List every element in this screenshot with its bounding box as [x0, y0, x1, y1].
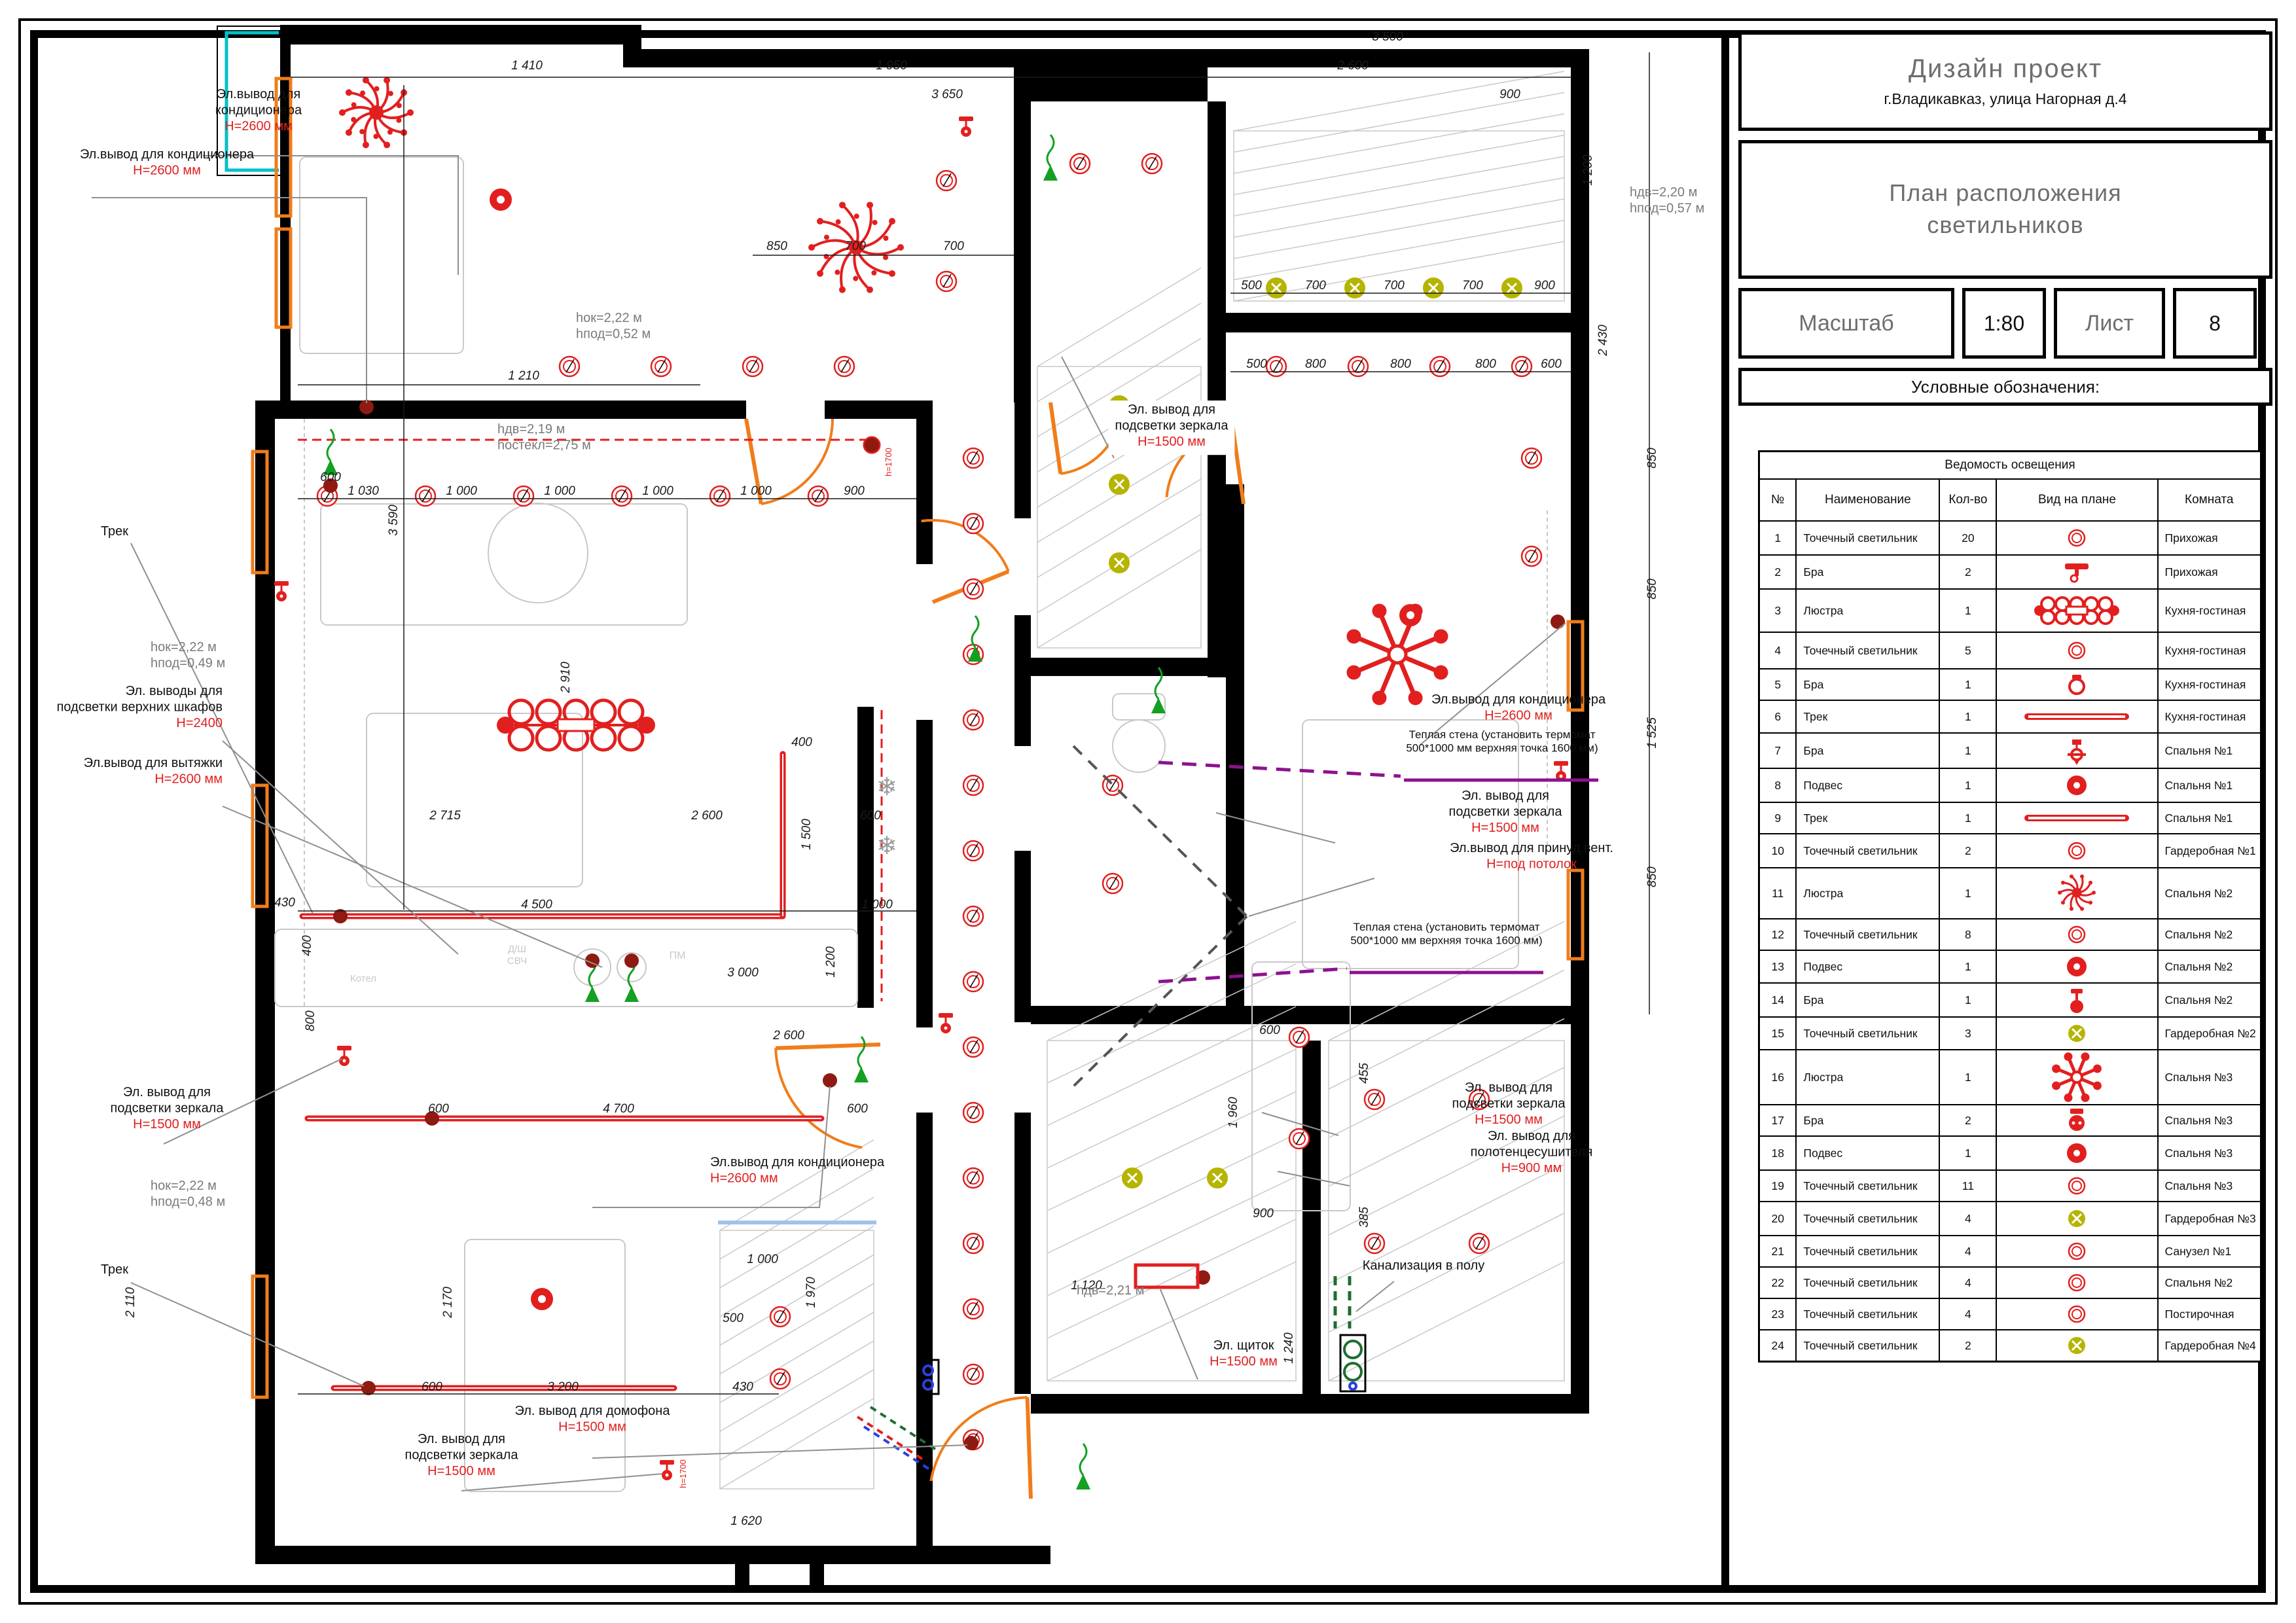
dimension-label: 400: [300, 935, 314, 956]
dimension-label: 700: [1305, 279, 1326, 293]
legend-row-number: 22: [1759, 1267, 1797, 1298]
legend-room: Спальня №3: [2158, 1136, 2261, 1170]
wall: [1014, 615, 1031, 746]
spot-light-icon: [612, 486, 632, 506]
svg-text:Эл. щиток: Эл. щиток: [1213, 1338, 1274, 1353]
legend-fixture-name: Точечный светильник: [1796, 1202, 1939, 1236]
scale-label: Масштаб: [1738, 288, 1954, 359]
spot-light-icon: [963, 1168, 983, 1188]
legend-qty: 4: [1939, 1236, 1996, 1267]
spot-light-icon: [1289, 1027, 1309, 1047]
legend-plan-symbol-spot-closet-icon: [1996, 1330, 2157, 1362]
dimension-label: 700: [845, 240, 866, 253]
legend-plan-symbol-bra-ring-icon: [1996, 669, 2157, 700]
legend-row-number: 8: [1759, 768, 1797, 802]
legend-row: 6 Трек 1 Кухня-гостиная: [1759, 700, 2261, 733]
closet-spot-light-icon: [1109, 553, 1129, 573]
legend-plan-symbol-bra-t-icon: [1996, 555, 2157, 589]
svg-text:500*1000 мм верхняя точка 1600: 500*1000 мм верхняя точка 1600 мм): [1350, 935, 1542, 947]
spot-light-icon: [710, 486, 730, 506]
svg-text:500*1000 мм верхняя точка 1600: 500*1000 мм верхняя точка 1600 мм): [1406, 742, 1598, 755]
annotation-height-value: H=2600 мм: [1484, 708, 1552, 722]
legend-room: Спальня №3: [2158, 1050, 2261, 1105]
legend-room: Спальня №1: [2158, 733, 2261, 768]
wall: [1014, 401, 1031, 518]
legend-row-number: 15: [1759, 1017, 1797, 1050]
legend-room: Гардеробная №2: [2158, 1017, 2261, 1050]
small-label: h=1700: [884, 448, 893, 476]
wall: [1031, 658, 1226, 676]
dimension-label: 800: [1305, 357, 1326, 371]
dimension-label: 2 170: [441, 1287, 455, 1319]
svg-text:Эл.вывод для принуд.вент.: Эл.вывод для принуд.вент.: [1450, 841, 1613, 855]
dimension-label: 2 430: [1596, 325, 1610, 357]
drawing-title-line2: светильников: [1889, 209, 2121, 241]
spot-light-icon: [963, 514, 983, 533]
svg-text:hдв=2,21 м: hдв=2,21 м: [1077, 1283, 1144, 1298]
spot-light-icon: [937, 272, 956, 291]
legend-row: 21 Точечный светильник 4 Санузел №1: [1759, 1236, 2261, 1267]
legend-fixture-name: Люстра: [1796, 589, 1939, 632]
legend-qty: 4: [1939, 1298, 1996, 1330]
small-label: Д/Ш: [508, 944, 526, 955]
legend-fixture-name: Люстра: [1796, 868, 1939, 919]
legend-qty: 4: [1939, 1267, 1996, 1298]
wall-sconce-icon: [959, 116, 973, 137]
spot-light-icon: [743, 357, 762, 376]
legend-fixture-name: Бра: [1796, 555, 1939, 589]
leader-line: [203, 156, 458, 275]
svg-text:Эл. выводы для: Эл. выводы для: [126, 684, 223, 698]
annotation-height-value: H=2600 мм: [154, 772, 223, 786]
svg-text:подсветки верхних шкафов: подсветки верхних шкафов: [57, 700, 223, 714]
annotation: Канализация в полу: [1363, 1258, 1484, 1273]
legend-qty: 1: [1939, 589, 1996, 632]
legend-fixture-name: Точечный светильник: [1796, 1330, 1939, 1362]
legend-row: 17 Бра 2 Спальня №3: [1759, 1105, 2261, 1136]
annotation: Эл.вывод длякондиционераH=2600 мм: [215, 87, 302, 134]
legend-row-number: 16: [1759, 1050, 1797, 1105]
leader-line: [1160, 1288, 1198, 1380]
spot-light-icon: [1365, 1234, 1384, 1253]
wall: [1031, 1394, 1589, 1414]
legend-qty: 1: [1939, 768, 1996, 802]
svg-text:hпод=0,57 м: hпод=0,57 м: [1630, 201, 1704, 215]
legend-qty: 11: [1939, 1170, 1996, 1202]
switch-icon: [1043, 135, 1058, 181]
legend-caption: Условные обозначения:: [1911, 377, 2100, 397]
dimension-label: 3 000: [727, 966, 759, 980]
legend-room: Постирочная: [2158, 1298, 2261, 1330]
svg-text:подсветки зеркала: подсветки зеркала: [1115, 418, 1229, 433]
project-address: г.Владикавказ, улица Нагорная д.4: [1884, 90, 2126, 108]
freezer-icon: ❄: [876, 774, 897, 801]
legend-room: Спальня №2: [2158, 983, 2261, 1017]
wall-sconce-icon: [274, 581, 289, 601]
sputnik-chandelier-icon: [1346, 603, 1448, 705]
wall: [280, 25, 634, 45]
legend-row-number: 19: [1759, 1170, 1797, 1202]
leader-line: [131, 1283, 364, 1386]
dimension-label: 2 600: [1336, 59, 1369, 73]
pendant-light-icon: [490, 188, 512, 211]
svg-text:Эл. вывод для: Эл. вывод для: [1488, 1129, 1575, 1143]
leader-line: [1249, 878, 1374, 916]
dimension-label: 400: [791, 736, 812, 749]
legend-plan-symbol-spot-icon: [1996, 1298, 2157, 1330]
legend-qty: 5: [1939, 632, 1996, 669]
wall: [1302, 1041, 1321, 1394]
legend-row: 20 Точечный светильник 4 Гардеробная №3: [1759, 1202, 2261, 1236]
spot-light-icon: [1348, 357, 1368, 376]
dimension-label: 2 910: [559, 662, 573, 694]
legend-room: Спальня №2: [2158, 868, 2261, 919]
legend-row: 22 Точечный светильник 4 Спальня №2: [1759, 1267, 2261, 1298]
project-box: Дизайн проект г.Владикавказ, улица Нагор…: [1738, 31, 2272, 131]
furniture: [321, 504, 687, 625]
spot-light-icon: [1522, 448, 1541, 468]
spot-light-icon: [963, 1037, 983, 1057]
closet-spot-light-icon: [1502, 278, 1522, 298]
spot-light-icon: [1430, 357, 1450, 376]
svg-text:Эл.вывод для кондиционера: Эл.вывод для кондиционера: [1431, 692, 1606, 707]
legend-fixture-name: Точечный светильник: [1796, 521, 1939, 555]
spot-light-icon: [963, 1103, 983, 1122]
legend-fixture-name: Точечный светильник: [1796, 1170, 1939, 1202]
spot-light-icon: [416, 486, 435, 506]
dimension-label: 500: [723, 1311, 744, 1325]
spot-light-icon: [963, 906, 983, 926]
spot-light-icon: [1266, 357, 1286, 376]
dimension-label: 1 240: [1282, 1332, 1296, 1364]
legend-qty: 1: [1939, 983, 1996, 1017]
spot-light-icon: [963, 579, 983, 599]
dimension-label: 1 000: [861, 898, 893, 912]
closet-spot-light-icon: [1109, 474, 1129, 494]
spot-light-icon: [514, 486, 533, 506]
drawing-sheet: ❄❄1 4101 2103 5903 6501 9502 6009003 500…: [0, 0, 2296, 1623]
leader-line: [92, 198, 367, 403]
spot-light-icon: [651, 357, 671, 376]
dimension-label: 1 030: [348, 484, 379, 498]
annotation-height-value: H=под потолок: [1486, 857, 1577, 871]
legend-plan-symbol-spot-icon: [1996, 521, 2157, 555]
legend-row-number: 9: [1759, 802, 1797, 834]
legend-qty: 8: [1939, 919, 1996, 950]
legend-row: 1 Точечный светильник 20 Прихожая: [1759, 521, 2261, 555]
svg-text:hдв=2,20 м: hдв=2,20 м: [1630, 185, 1697, 200]
title-block: Дизайн проект г.Владикавказ, улица Нагор…: [1738, 31, 2272, 415]
wall: [825, 401, 920, 419]
legend-room: Прихожая: [2158, 555, 2261, 589]
svg-text:Канализация в полу: Канализация в полу: [1363, 1258, 1484, 1273]
wall: [1014, 49, 1031, 402]
legend-room: Гардеробная №1: [2158, 834, 2261, 868]
svg-text:Трек: Трек: [101, 524, 128, 539]
annotation-height-value: H=2600 мм: [710, 1171, 778, 1185]
dimension-label: 850: [766, 240, 787, 253]
closet-spot-light-icon: [1345, 278, 1365, 298]
legend-row: 19 Точечный светильник 11 Спальня №3: [1759, 1170, 2261, 1202]
annotation: Эл.вывод для кондиционераH=2600 мм: [80, 147, 255, 177]
legend-row: 3 Люстра 1 Кухня-гостиная: [1759, 589, 2261, 632]
annotation-height-value: H=1500 мм: [1471, 821, 1539, 835]
closet-spot-light-icon: [1208, 1168, 1227, 1188]
dimension-label: 3 590: [387, 505, 401, 536]
furniture: [1252, 962, 1350, 1211]
spot-light-icon: [963, 1364, 983, 1384]
spot-light-icon: [1070, 154, 1090, 173]
svg-text:подсветки зеркала: подсветки зеркала: [111, 1101, 224, 1115]
annotation: Эл. вывод для домофонаH=1500 мм: [515, 1404, 671, 1434]
legend-plan-symbol-bra-drop-icon: [1996, 983, 2157, 1017]
dimension-label: 900: [844, 484, 865, 498]
electrical-outlet-dot: [361, 1381, 376, 1395]
wall-sconce-icon: [337, 1046, 351, 1066]
svg-text:hдв=2,19 м: hдв=2,19 м: [497, 422, 565, 437]
legend-plan-symbol-track-icon: [1996, 802, 2157, 834]
legend-fixture-name: Бра: [1796, 1105, 1939, 1136]
dimension-label: 600: [1541, 357, 1562, 371]
annotation: Эл. выводы дляподсветки верхних шкафовH=…: [57, 684, 223, 730]
dimension-label: 3 500: [1372, 30, 1403, 44]
legend-room: Спальня №1: [2158, 768, 2261, 802]
legend-col-header: №: [1759, 479, 1797, 521]
legend-plan-symbol-spot-closet-icon: [1996, 1017, 2157, 1050]
legend-room: Кухня-гостиная: [2158, 669, 2261, 700]
legend-plan-symbol-bra-finial-icon: [1996, 733, 2157, 768]
dimension-label: 700: [943, 240, 964, 253]
legend-plan-symbol-spot-icon: [1996, 1170, 2157, 1202]
wall: [916, 401, 933, 564]
annotation: Трек: [101, 1262, 128, 1277]
dimension-label: 850: [1645, 866, 1659, 887]
svg-text:подсветки зеркала: подсветки зеркала: [1452, 1096, 1566, 1111]
svg-text:Эл. вывод для: Эл. вывод для: [418, 1432, 505, 1446]
electrical-outlet-dot: [865, 438, 879, 452]
dimension-label: 455: [1357, 1063, 1371, 1084]
freezer-icon: ❄: [876, 832, 897, 860]
dimension-label: 3 200: [547, 1380, 579, 1394]
legend-fixture-name: Точечный светильник: [1796, 632, 1939, 669]
small-label: СВЧ: [507, 955, 527, 967]
legend-qty: 20: [1939, 521, 1996, 555]
leader-line: [1356, 1281, 1394, 1311]
svg-text:Эл.вывод для кондиционера: Эл.вывод для кондиционера: [710, 1155, 885, 1169]
legend-row: 24 Точечный светильник 2 Гардеробная №4: [1759, 1330, 2261, 1362]
annotation-height-value: H=2600 мм: [133, 163, 201, 177]
annotation: hдв=2,19 мhостекл=2,75 м: [497, 422, 591, 452]
furniture: [488, 503, 588, 603]
svg-text:hпод=0,48 м: hпод=0,48 м: [151, 1194, 225, 1209]
svg-text:Эл. вывод для домофона: Эл. вывод для домофона: [515, 1404, 671, 1418]
svg-text:подсветки зеркала: подсветки зеркала: [1449, 804, 1563, 819]
furniture: [367, 713, 583, 887]
legend-qty: 1: [1939, 1050, 1996, 1105]
legend-table-title: Ведомость освещения: [1759, 452, 2261, 480]
dimension-label: 2 715: [429, 809, 461, 823]
wall: [1031, 49, 1208, 101]
legend-row-number: 23: [1759, 1298, 1797, 1330]
legend-qty: 1: [1939, 802, 1996, 834]
svg-text:hостекл=2,75 м: hостекл=2,75 м: [497, 438, 591, 452]
legend-col-header: Вид на плане: [1996, 479, 2157, 521]
annotation: Эл. вывод дляподсветки зеркалаH=1500 мм: [405, 1432, 519, 1478]
legend-row-number: 6: [1759, 700, 1797, 733]
spot-light-icon: [808, 486, 828, 506]
svg-text:кондиционера: кондиционера: [215, 103, 302, 117]
legend-room: Спальня №3: [2158, 1105, 2261, 1136]
legend-room: Спальня №2: [2158, 1267, 2261, 1298]
legend-plan-symbol-spot-icon: [1996, 1236, 2157, 1267]
wall: [1014, 851, 1031, 1022]
annotation: Эл. вывод дляподсветки зеркалаH=1500 мм: [1452, 1080, 1566, 1127]
legend-plan-symbol-spot-icon: [1996, 834, 2157, 868]
spot-light-icon: [963, 972, 983, 991]
closet-spot-light-icon: [1122, 1168, 1142, 1188]
electrical-outlet-dot: [1551, 615, 1565, 629]
spot-light-icon: [1289, 1129, 1309, 1149]
legend-fixture-name: Бра: [1796, 983, 1939, 1017]
legend-fixture-name: Подвес: [1796, 1136, 1939, 1170]
legend-plan-symbol-chandelier-sputnik-icon: [1996, 1050, 2157, 1105]
dimension-label: 1 620: [730, 1514, 762, 1528]
svg-text:Эл. вывод для: Эл. вывод для: [1465, 1080, 1552, 1095]
legend-plan-symbol-chandelier-swirl-icon: [1996, 868, 2157, 919]
dimension-label: 600: [428, 1102, 449, 1116]
legend-fixture-name: Подвес: [1796, 950, 1939, 983]
legend-plan-symbol-track-icon: [1996, 700, 2157, 733]
spot-light-icon: [963, 710, 983, 730]
dimension-label: 1 525: [1645, 717, 1659, 749]
spot-light-icon: [1522, 546, 1541, 566]
swirl-chandelier-icon: [339, 77, 414, 149]
dimension-label: 4 500: [521, 898, 552, 912]
legend-row-number: 11: [1759, 868, 1797, 919]
legend-row: 2 Бра 2 Прихожая: [1759, 555, 2261, 589]
legend-qty: 1: [1939, 868, 1996, 919]
legend-row: 16 Люстра 1 Спальня №3: [1759, 1050, 2261, 1105]
legend-col-header: Наименование: [1796, 479, 1939, 521]
dimension-label: 430: [732, 1380, 753, 1394]
wall: [735, 1564, 749, 1592]
dimension-label: 700: [1462, 279, 1483, 293]
annotation: Эл. вывод дляподсветки зеркалаH=1500 мм: [1109, 401, 1235, 455]
switch-icon: [323, 429, 338, 475]
dimension-label: 800: [1390, 357, 1411, 371]
svg-text:Эл. вывод для: Эл. вывод для: [1462, 789, 1549, 803]
legend-room: Гардеробная №3: [2158, 1202, 2261, 1236]
svg-text:hпод=0,49 м: hпод=0,49 м: [151, 656, 225, 670]
legend-row: 12 Точечный светильник 8 Спальня №2: [1759, 919, 2261, 950]
annotation-height-value: H=1500 мм: [133, 1117, 201, 1132]
legend-caption-box: Условные обозначения:: [1738, 368, 2272, 406]
legend-row-number: 14: [1759, 983, 1797, 1017]
annotation: hдв=2,20 мhпод=0,57 м: [1630, 185, 1704, 215]
legend-plan-symbol-spot-icon: [1996, 919, 2157, 950]
legend-fixture-name: Точечный светильник: [1796, 1267, 1939, 1298]
annotation: Эл.вывод для кондиционераH=2600 мм: [710, 1155, 885, 1185]
legend-row: 9 Трек 1 Спальня №1: [1759, 802, 2261, 834]
spot-light-icon: [963, 1299, 983, 1319]
spot-light-icon: [1469, 1234, 1489, 1253]
annotation-height-value: H=2400: [176, 716, 223, 730]
dimension-label: 600: [422, 1380, 442, 1394]
annotation: Эл. щитокH=1500 мм: [1210, 1338, 1278, 1368]
wall: [255, 401, 746, 419]
spot-light-icon: [770, 1369, 790, 1389]
legend-plan-symbol-chandelier-long-icon: [1996, 589, 2157, 632]
legend-row: 23 Точечный светильник 4 Постирочная: [1759, 1298, 2261, 1330]
door-arc: [931, 1397, 1031, 1499]
pendant-light-icon: [531, 1288, 553, 1310]
annotation-height-value: H=1500 мм: [558, 1419, 626, 1434]
electrical-outlet-dot: [624, 954, 639, 968]
spot-light-icon: [1142, 154, 1162, 173]
legend-qty: 1: [1939, 1136, 1996, 1170]
svg-text:Эл.вывод для кондиционера: Эл.вывод для кондиционера: [80, 147, 255, 162]
annotation: hок=2,22 мhпод=0,52 м: [576, 311, 651, 341]
svg-text:Эл.вывод для вытяжки: Эл.вывод для вытяжки: [84, 756, 223, 770]
legend-fixture-name: Точечный светильник: [1796, 919, 1939, 950]
annotation-height-value: H=1500 мм: [1475, 1113, 1543, 1127]
legend-qty: 1: [1939, 733, 1996, 768]
wall-sconce-icon: [1554, 761, 1568, 781]
legend-fixture-name: Трек: [1796, 802, 1939, 834]
legend-room: Прихожая: [2158, 521, 2261, 555]
legend-row: 14 Бра 1 Спальня №2: [1759, 983, 2261, 1017]
dimension-label: 2 600: [772, 1029, 804, 1043]
dimension-label: 385: [1357, 1207, 1371, 1228]
dimension-label: 1 000: [740, 484, 772, 498]
door-arc: [776, 1044, 880, 1148]
svg-text:полотенцесушителя: полотенцесушителя: [1471, 1145, 1593, 1159]
spot-light-icon: [963, 776, 983, 795]
dimension-label: 2 110: [124, 1287, 137, 1319]
legend-row: 7 Бра 1 Спальня №1: [1759, 733, 2261, 768]
legend-room: Кухня-гостиная: [2158, 589, 2261, 632]
legend-plan-symbol-pendant-icon: [1996, 950, 2157, 983]
dimension-label: 1 970: [804, 1277, 818, 1308]
spot-light-icon: [560, 357, 579, 376]
dimension-label: 600: [860, 809, 881, 823]
spot-light-icon: [963, 448, 983, 468]
legend-row: 5 Бра 1 Кухня-гостиная: [1759, 669, 2261, 700]
legend-header-row: №НаименованиеКол-воВид на планеКомната: [1759, 479, 2261, 521]
dimension-label: 800: [304, 1010, 317, 1031]
dimension-label: 430: [274, 896, 295, 910]
linear-chandelier-icon: [497, 700, 655, 750]
annotation: hок=2,22 мhпод=0,49 м: [151, 640, 225, 670]
legend-plan-symbol-bra-knob-icon: [1996, 1105, 2157, 1136]
legend-plan-symbol-pendant-icon: [1996, 1136, 2157, 1170]
legend-qty: 1: [1939, 700, 1996, 733]
svg-text:hок=2,22 м: hок=2,22 м: [151, 640, 217, 654]
legend-row-number: 4: [1759, 632, 1797, 669]
dimension-label: 1 410: [511, 59, 543, 73]
legend-plan-symbol-spot-icon: [1996, 632, 2157, 669]
dimension-label: 1 200: [824, 946, 838, 978]
legend-col-header: Кол-во: [1939, 479, 1996, 521]
svg-text:Теплая стена (установить термо: Теплая стена (установить термомат: [1409, 728, 1596, 741]
drawing-title-box: План расположения светильников: [1738, 140, 2272, 279]
wall: [1226, 313, 1571, 332]
svg-text:Эл. вывод для: Эл. вывод для: [1128, 402, 1215, 417]
small-label: ПМ: [670, 950, 686, 961]
annotation-height-value: H=900 мм: [1501, 1161, 1562, 1175]
legend-room: Гардеробная №4: [2158, 1330, 2261, 1362]
electrical-outlet-dot: [823, 1073, 837, 1088]
